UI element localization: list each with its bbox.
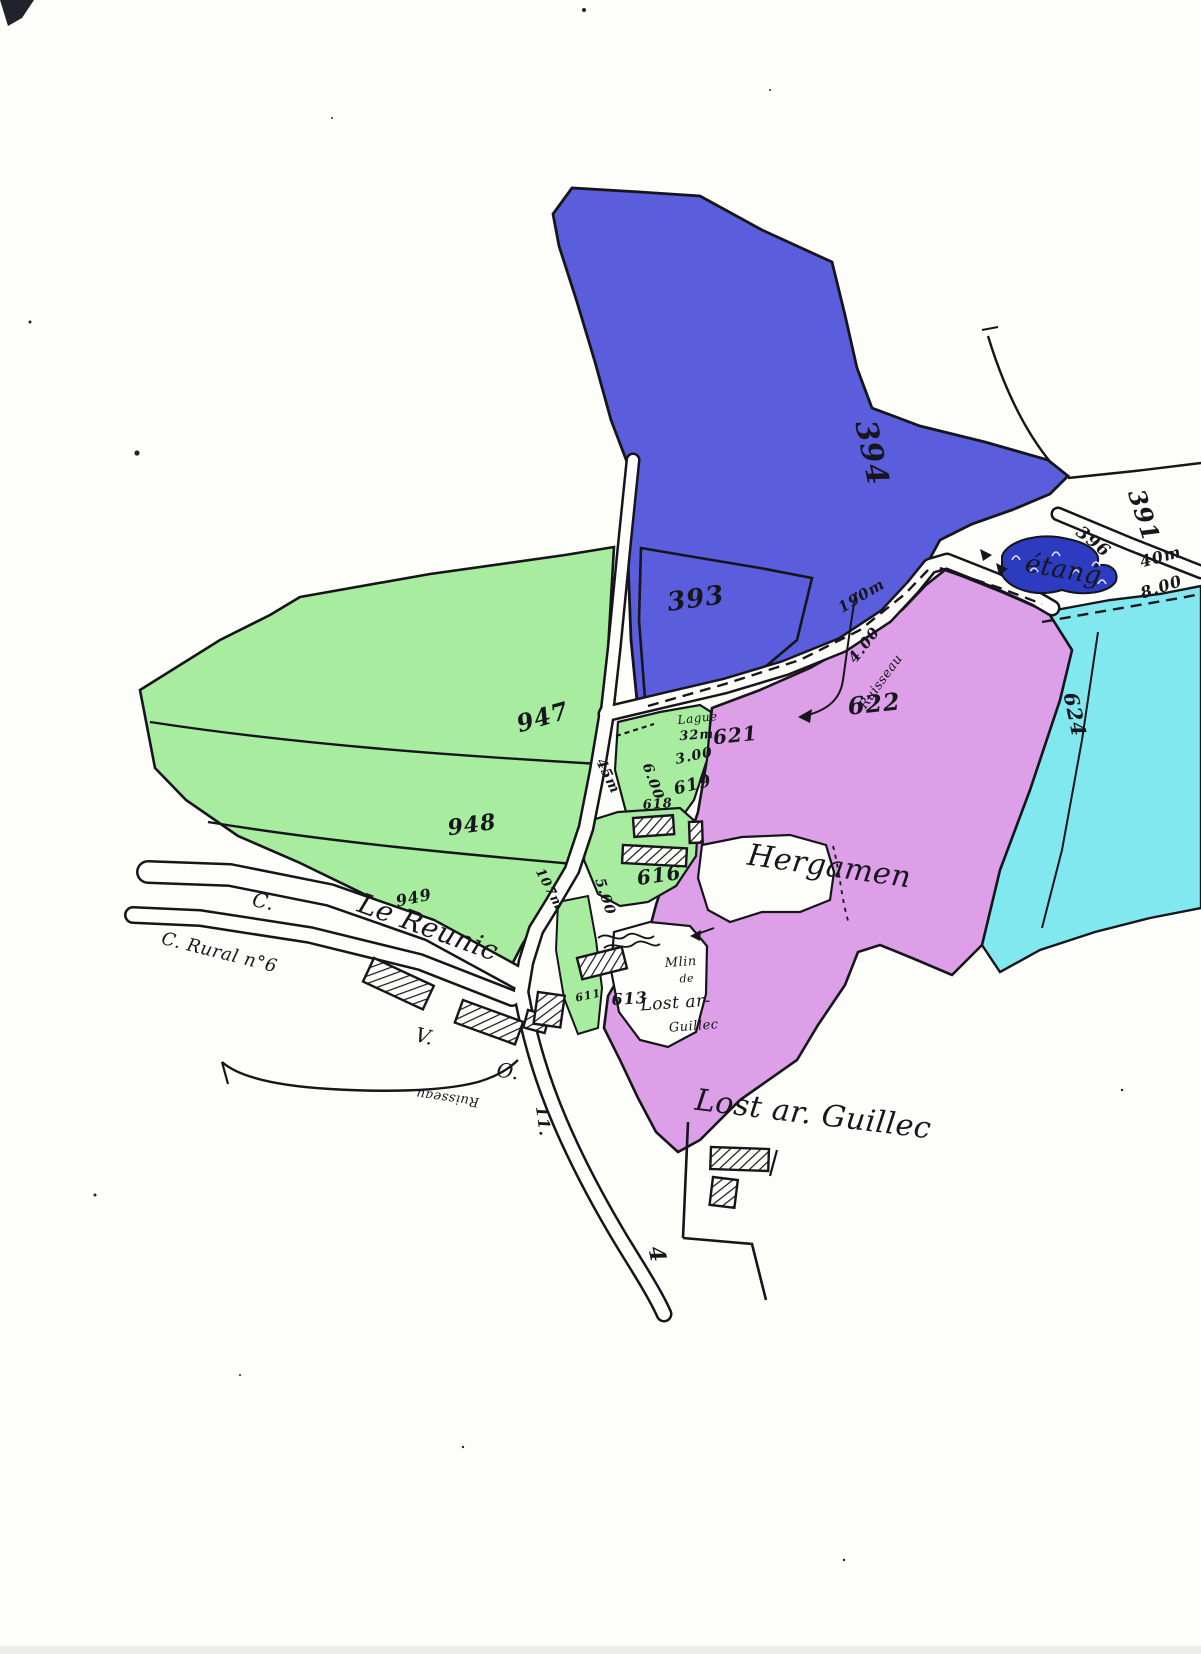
building-reunic-d bbox=[534, 992, 565, 1027]
corner-smudge bbox=[0, 0, 34, 26]
stream-ruisseau-lower bbox=[222, 1060, 518, 1091]
map-label-v-abbrev: V. bbox=[413, 1022, 437, 1050]
building-618-b bbox=[689, 822, 703, 843]
map-label-o-abbrev: O. bbox=[495, 1058, 521, 1085]
lost-boundary-bottom bbox=[683, 1238, 766, 1300]
scanned-cadastral-map: 394393391396étang40m8.006246226216196186… bbox=[0, 0, 1201, 1654]
map-label-ruisseau-lower: Ruisseau bbox=[415, 1086, 481, 1110]
cadastral-map-canvas: 394393391396étang40m8.006246226216196186… bbox=[0, 0, 1201, 1654]
map-label-lost-big: Lost ar. Guillec bbox=[692, 1083, 933, 1147]
parcel-391-top-edge bbox=[1068, 463, 1201, 478]
scan-bottom-shadow bbox=[0, 1646, 1201, 1654]
building-618-a bbox=[633, 815, 674, 837]
building-lost-b bbox=[710, 1177, 738, 1208]
building-lost-a bbox=[710, 1147, 769, 1171]
map-label-dist-32m: 32m bbox=[679, 727, 715, 744]
map-label-p621: 621 bbox=[712, 721, 759, 750]
lost-building-tail bbox=[770, 1150, 777, 1176]
map-label-n4: 4 bbox=[642, 1244, 671, 1265]
map-label-mlin: Mlin bbox=[663, 954, 697, 971]
road-tick-a bbox=[980, 549, 992, 561]
top-right-tick bbox=[982, 327, 998, 330]
map-label-c-abbrev: C. bbox=[250, 887, 276, 915]
map-label-n11: 11. bbox=[532, 1105, 555, 1138]
map-label-mlin-de: de bbox=[679, 972, 694, 986]
